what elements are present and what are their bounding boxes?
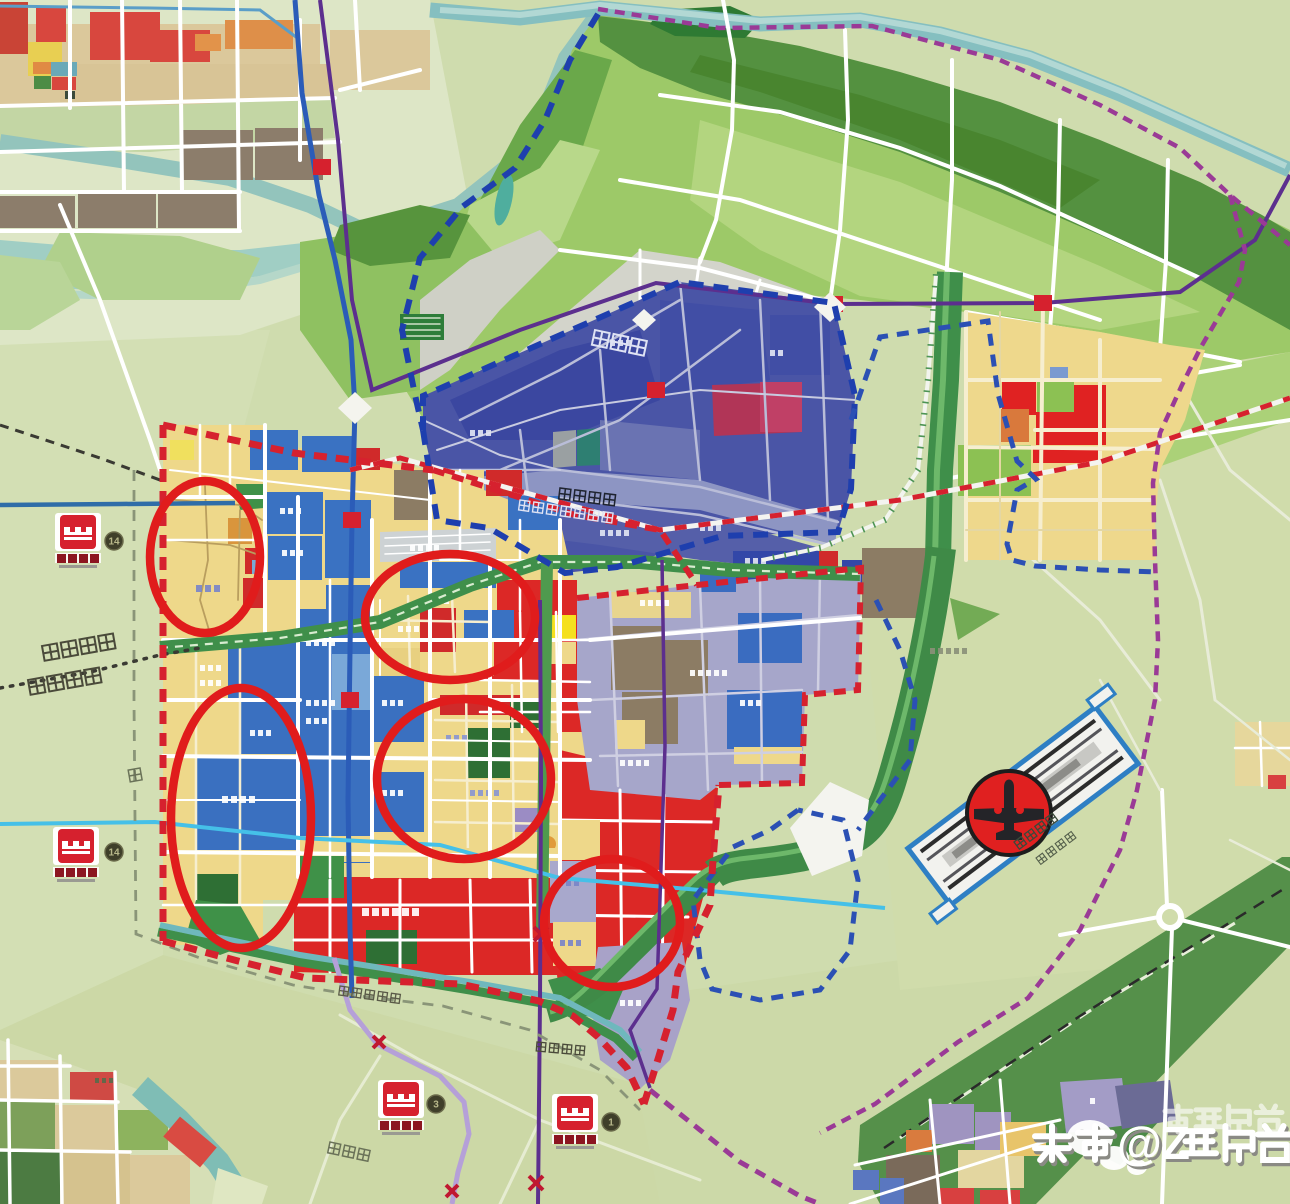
svg-text:14: 14 xyxy=(108,848,120,859)
svg-text:3: 3 xyxy=(433,1100,439,1111)
svg-text:14: 14 xyxy=(108,537,120,548)
svg-text:1: 1 xyxy=(608,1118,614,1129)
